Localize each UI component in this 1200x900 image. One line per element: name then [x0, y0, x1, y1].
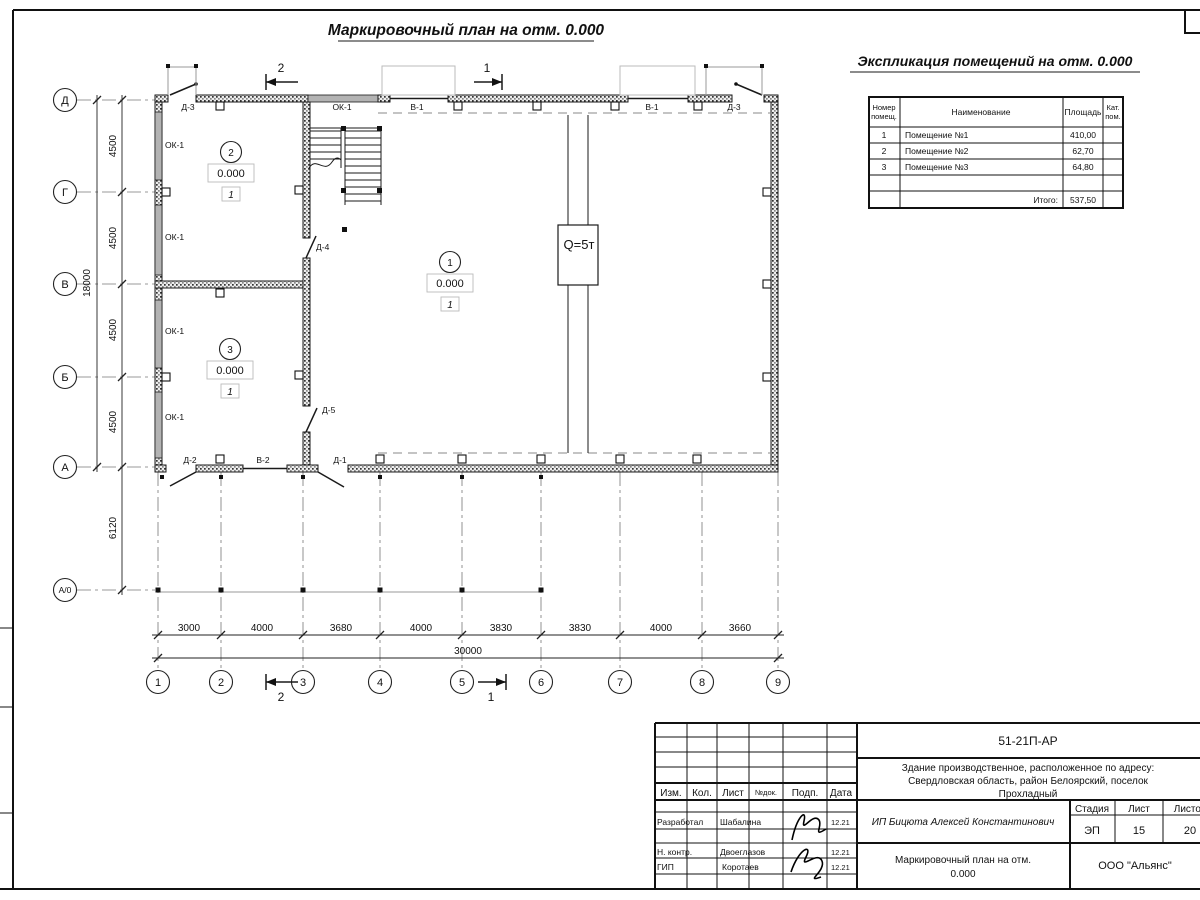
col-podp: Подп.: [792, 788, 819, 799]
window-ok1-top: [308, 95, 378, 102]
door-d5-leaf: [306, 408, 317, 432]
col-num-line1: Номер: [872, 103, 895, 112]
crane-capacity-label: Q=5т: [564, 237, 595, 252]
dim-v-offset: 6120: [108, 516, 119, 539]
window-ok1-left-2: [155, 205, 162, 275]
sheet-value: 15: [1133, 825, 1145, 837]
axis-col-7: 7: [617, 677, 623, 689]
explication-table: Экспликация помещений на отм. 0.000 Номе…: [850, 53, 1140, 208]
col-num-line2: помещ.: [871, 112, 897, 121]
label-d1: Д-1: [333, 455, 347, 465]
dim-h-7: 4000: [650, 623, 673, 634]
section-marks: 2 1 2 1: [266, 61, 506, 704]
sheet-title-line1: Маркировочный план на отм.: [895, 855, 1031, 866]
address-line1: Здание производственное, расположенное п…: [902, 763, 1155, 774]
label-v1-left: В-1: [410, 102, 424, 112]
dim-h-4: 4000: [410, 623, 433, 634]
frame-corner-box: [1185, 10, 1200, 33]
label-ok1-1: ОК-1: [165, 140, 184, 150]
doc-number: 51-21П-АР: [998, 734, 1057, 748]
plan-title-text: Маркировочный план на отм. 0.000: [328, 22, 605, 39]
dim-h-8: 3660: [729, 623, 752, 634]
room3-number: 3: [227, 345, 233, 356]
room2-number: 2: [228, 148, 234, 159]
window-ok1-left-4: [155, 392, 162, 458]
row3-area: 64,80: [1072, 162, 1094, 172]
name-2: Двоеглазов: [720, 847, 766, 857]
total-label: Итого:: [1033, 195, 1058, 205]
axis-row-b: Б: [61, 372, 68, 384]
horizontal-dimensions: 3000 4000 3680 4000 3830 3830 4000 3660 …: [152, 623, 784, 662]
role-1: Разработал: [657, 817, 703, 827]
label-d3-left: Д-3: [181, 102, 195, 112]
label-ok1-3: ОК-1: [165, 326, 184, 336]
row3-name: Помещение №3: [905, 162, 969, 172]
door-d4-leaf: [306, 236, 316, 258]
label-v1-right: В-1: [645, 102, 659, 112]
explication-header: Номер помещ. Наименование Площадь Кат. п…: [871, 103, 1121, 121]
address-line2: Свердловская область, район Белоярский, …: [908, 775, 1148, 787]
company-name: ООО "Альянс": [1098, 860, 1172, 872]
canopies: [166, 64, 764, 95]
label-d3-right: Д-3: [727, 102, 741, 112]
section-mark-1-top: 1: [474, 61, 502, 90]
axis-row-g: Г: [62, 187, 68, 199]
role-3: ГИП: [657, 862, 674, 872]
label-d4: Д-4: [316, 242, 330, 252]
section-1-label-top: 1: [484, 61, 491, 75]
signature-1: [792, 815, 826, 840]
axis-col-9: 9: [775, 677, 781, 689]
dim-v-total: 18000: [82, 269, 93, 297]
col-name: Наименование: [952, 107, 1011, 117]
sheet-label: Лист: [1128, 804, 1150, 815]
vertical-dimensions: 18000 4500 4500 4500 4500 6120: [82, 95, 126, 595]
column-axes: 1 2 3 4 5 6 7 8 9: [147, 472, 790, 694]
room3-level: 0.000: [216, 365, 244, 377]
label-v2: В-2: [256, 455, 270, 465]
axis-col-4: 4: [377, 677, 383, 689]
dim-h-6: 3830: [569, 623, 592, 634]
row3-num: 3: [882, 162, 887, 172]
section-1-label-bottom: 1: [488, 690, 495, 704]
door-d3-right-leaf: [736, 84, 762, 95]
row1-num: 1: [882, 130, 887, 140]
role-2: Н. контр.: [657, 847, 692, 857]
col-area: Площадь: [1064, 107, 1102, 117]
staircase: [309, 126, 382, 232]
room-tag-3: 3 0.000 1: [207, 339, 253, 399]
axis-col-5: 5: [459, 677, 465, 689]
section-2-label-top: 2: [278, 61, 285, 75]
date-3: 12.21: [831, 863, 850, 872]
door-d1-leaf: [318, 472, 344, 487]
label-ok1-2: ОК-1: [165, 232, 184, 242]
plan-title: Маркировочный план на отм. 0.000: [328, 22, 605, 41]
label-d5: Д-5: [322, 405, 336, 415]
dim-h-5: 3830: [490, 623, 513, 634]
sheets-value: 20: [1184, 825, 1196, 837]
dim-v-2: 4500: [108, 226, 119, 249]
col-cat-line2: пом.: [1105, 112, 1120, 121]
drawing-canvas: Маркировочный план на отм. 0.000 Эксплик…: [0, 0, 1200, 900]
title-block: Изм. Кол. Лист №док. Подп. Дата Разработ…: [655, 723, 1200, 888]
room1-category: 1: [447, 300, 453, 311]
name-3: Коротаев: [722, 862, 759, 872]
room-tag-2: 2 0.000 1: [208, 142, 254, 202]
axis-col-1: 1: [155, 677, 161, 689]
crane-bridge: [558, 225, 598, 285]
col-kol: Кол.: [692, 788, 712, 799]
dim-v-3: 4500: [108, 318, 119, 341]
col-cat-line1: Кат.: [1106, 103, 1119, 112]
dim-h-1: 3000: [178, 623, 201, 634]
col-doc: №док.: [755, 788, 777, 797]
axis-col-8: 8: [699, 677, 705, 689]
titleblock-roles: Разработал Шабалина 12.21 Н. контр. Двое…: [657, 815, 850, 879]
dim-v-1: 4500: [108, 134, 119, 157]
row2-name: Помещение №2: [905, 146, 969, 156]
row2-area: 62,70: [1072, 146, 1094, 156]
axis-col-3: 3: [300, 677, 306, 689]
name-1: Шабалина: [720, 817, 761, 827]
client-name: ИП Бицюта Алексей Константинович: [872, 817, 1055, 828]
stage-value: ЭП: [1084, 825, 1100, 837]
axis-row-d: Д: [61, 95, 69, 107]
total-value: 537,50: [1070, 195, 1096, 205]
dim-v-4: 4500: [108, 410, 119, 433]
label-ok1-4: ОК-1: [165, 412, 184, 422]
axis-row-v: В: [61, 279, 68, 291]
section-2-label-bottom: 2: [278, 690, 285, 704]
room-tag-1: 1 0.000 1: [427, 252, 473, 312]
label-ok1-top: ОК-1: [332, 102, 351, 112]
sheet-title-line2: 0.000: [950, 869, 975, 880]
label-d2: Д-2: [183, 455, 197, 465]
address-line3: Прохладный: [999, 789, 1058, 800]
row1-name: Помещение №1: [905, 130, 969, 140]
section-mark-2-top: 2: [266, 61, 298, 90]
window-ok1-left-1: [155, 112, 162, 180]
axis-row-a: А: [61, 462, 69, 474]
row1-area: 410,00: [1070, 130, 1096, 140]
door-d2-leaf: [170, 472, 196, 486]
dim-h-2: 4000: [251, 623, 274, 634]
drawing-sheet: Маркировочный план на отм. 0.000 Эксплик…: [0, 0, 1200, 900]
stage-label: Стадия: [1075, 804, 1109, 815]
explication-rows: 1 Помещение №1 410,00 2 Помещение №2 62,…: [882, 130, 1097, 205]
door-d3-left-leaf: [170, 84, 196, 95]
room1-number: 1: [447, 258, 453, 269]
colonnade-a0: [156, 475, 544, 593]
dim-h-total: 30000: [454, 646, 482, 657]
section-mark-1-bottom: 1: [478, 674, 506, 704]
axis-col-2: 2: [218, 677, 224, 689]
col-data: Дата: [830, 788, 853, 799]
room2-level: 0.000: [217, 168, 245, 180]
room2-category: 1: [228, 190, 234, 201]
col-izm: Изм.: [660, 788, 681, 799]
col-list: Лист: [722, 788, 744, 799]
room1-level: 0.000: [436, 278, 464, 290]
date-2: 12.21: [831, 848, 850, 857]
date-1: 12.21: [831, 818, 850, 827]
axis-col-6: 6: [538, 677, 544, 689]
row2-num: 2: [882, 146, 887, 156]
titleblock-columns: Изм. Кол. Лист №док. Подп. Дата: [660, 788, 852, 799]
room3-category: 1: [227, 387, 233, 398]
sheets-label: Листов: [1174, 804, 1200, 815]
dim-h-3: 3680: [330, 623, 353, 634]
explication-title: Экспликация помещений на отм. 0.000: [858, 53, 1133, 69]
axis-row-a0: А/0: [59, 585, 72, 595]
row-axes: Д Г В Б А А/0: [54, 89, 156, 602]
window-ok1-left-3: [155, 300, 162, 368]
